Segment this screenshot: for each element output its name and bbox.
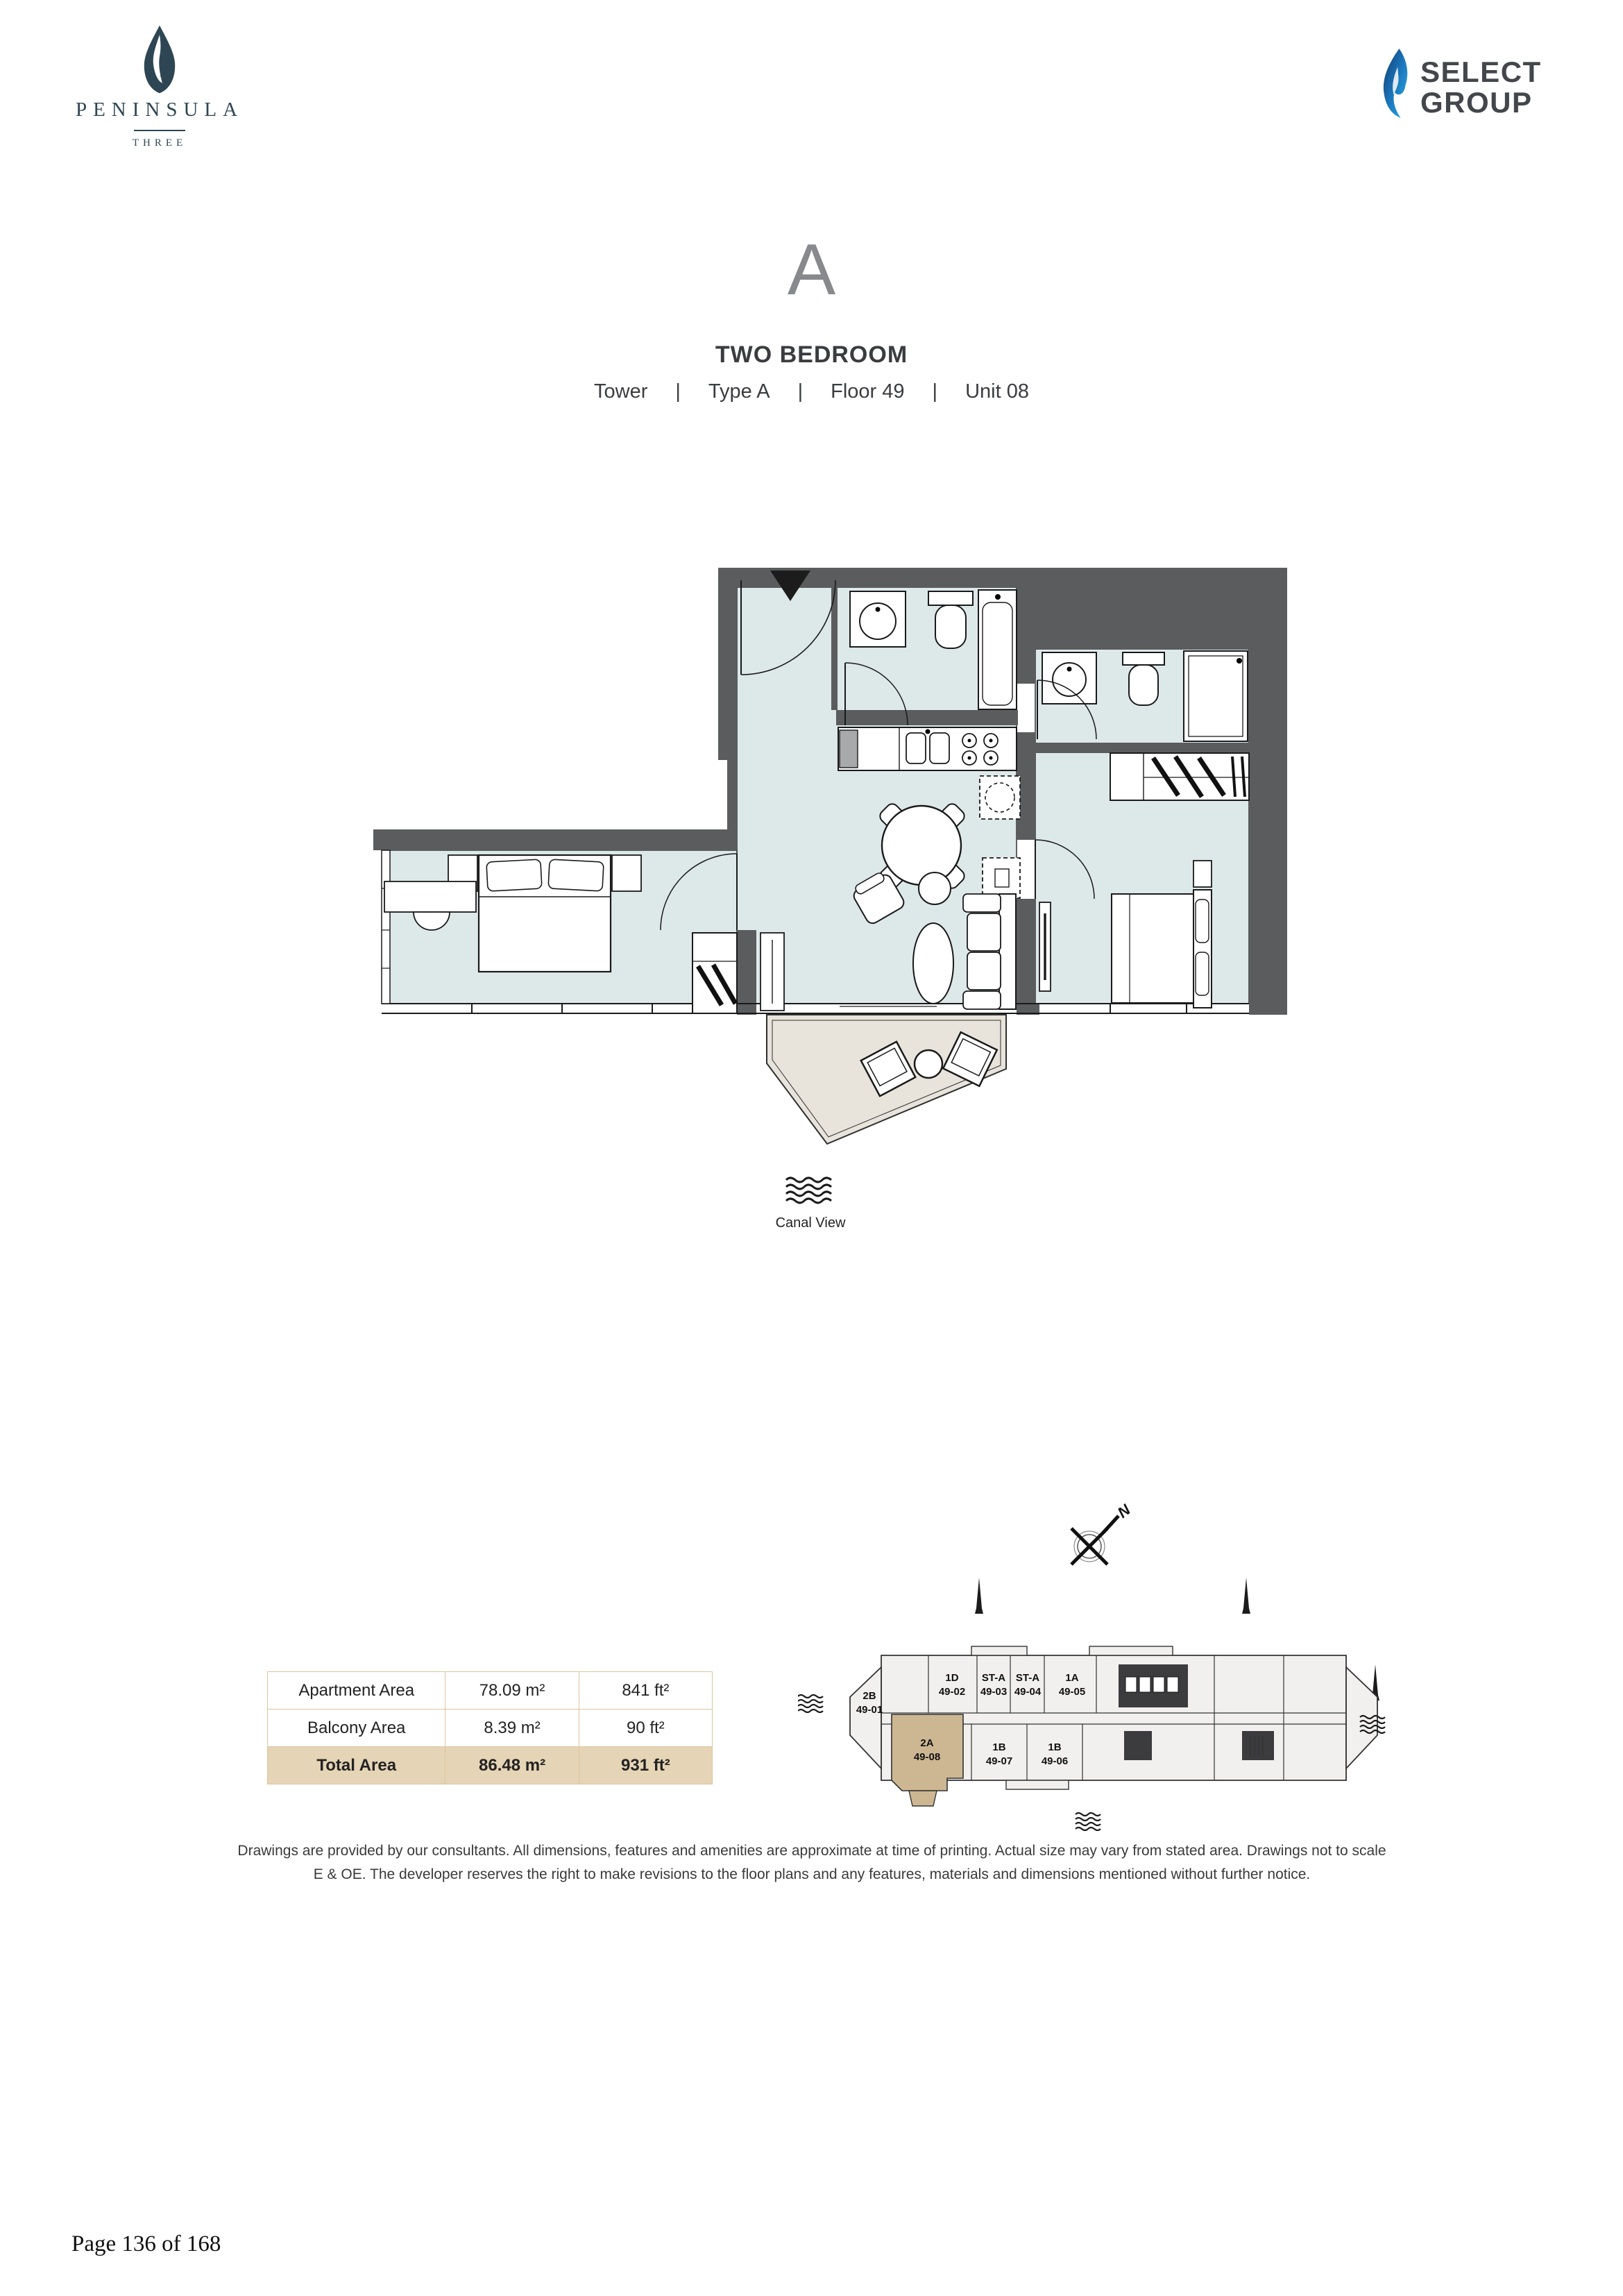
unit-label-number: 49-08 — [914, 1751, 940, 1763]
bed — [1112, 894, 1193, 1003]
desk — [384, 881, 476, 912]
select-group-logo: SELECT GROUP — [1377, 49, 1542, 118]
meta-unit: Unit 08 — [965, 380, 1029, 403]
table-row: Balcony Area 8.39 m² 90 ft² — [268, 1710, 713, 1747]
area-table: Apartment Area 78.09 m² 841 ft² Balcony … — [267, 1671, 713, 1784]
table-row-total: Total Area 86.48 m² 931 ft² — [268, 1747, 713, 1784]
unit-label-code: 1D — [945, 1672, 958, 1684]
unit-title: TWO BEDROOM — [0, 341, 1623, 369]
unit-label-number: 49-06 — [1042, 1755, 1068, 1767]
area-label: Total Area — [268, 1747, 445, 1784]
unit-label-number: 49-04 — [1014, 1686, 1042, 1698]
unit-label-code: 2A — [920, 1737, 933, 1749]
area-metric: 86.48 m² — [445, 1747, 579, 1784]
nightstand — [1193, 861, 1212, 887]
appliance — [983, 858, 1020, 898]
area-label: Apartment Area — [268, 1672, 445, 1710]
key-plan: N — [798, 1492, 1388, 1839]
unit-label-number: 49-03 — [980, 1686, 1007, 1698]
canal-view: Canal View — [741, 1176, 880, 1231]
meta-tower: Tower — [594, 380, 647, 403]
floor-plan — [312, 514, 1318, 1215]
canal-view-label: Canal View — [741, 1215, 880, 1231]
area-metric: 8.39 m² — [445, 1710, 579, 1747]
flame-icon — [1377, 49, 1415, 118]
dining-table — [882, 806, 961, 885]
unit-label-code: 2B — [863, 1690, 876, 1702]
developer-line1: SELECT — [1420, 57, 1542, 87]
page-number: Page 136 of 168 — [71, 2231, 221, 2257]
kitchen-sink — [906, 733, 926, 763]
pillow — [1196, 900, 1209, 943]
wardrobe — [692, 933, 737, 1013]
meta-floor: Floor 49 — [831, 380, 904, 403]
developer-name: SELECT GROUP — [1420, 57, 1542, 118]
unit-label-code: 1B — [992, 1741, 1005, 1753]
waves-icon — [783, 1176, 838, 1209]
unit-label-number: 49-01 — [856, 1704, 883, 1716]
disclaimer-text: Drawings are provided by our consultants… — [236, 1839, 1388, 1886]
peninsula-logo: PENINSULA THREE — [69, 24, 250, 149]
balcony — [767, 1015, 1006, 1144]
building-outline — [850, 1646, 1377, 1806]
pillow — [1196, 952, 1209, 995]
brand-divider — [134, 130, 185, 131]
unit-label-code: 1B — [1048, 1741, 1061, 1753]
toilet — [928, 591, 973, 605]
unit-label-code: ST-A — [1016, 1672, 1039, 1684]
meta-separator: | — [933, 380, 938, 403]
balcony-table — [915, 1050, 942, 1078]
brochure-page: PENINSULA THREE SELECT GROUP A TWO BEDRO… — [0, 0, 1623, 2296]
area-imperial: 841 ft² — [579, 1672, 712, 1710]
area-imperial: 90 ft² — [579, 1710, 712, 1747]
developer-line2: GROUP — [1420, 87, 1542, 118]
coffee-table — [913, 923, 953, 1004]
unit-label-code: 1A — [1065, 1672, 1078, 1684]
unit-label-number: 49-05 — [1059, 1686, 1085, 1698]
pillow — [548, 859, 604, 891]
brand-name: PENINSULA — [69, 99, 250, 121]
table-row: Apartment Area 78.09 m² 841 ft² — [268, 1672, 713, 1710]
meta-separator: | — [675, 380, 681, 403]
area-imperial: 931 ft² — [579, 1747, 712, 1784]
unit-label-code: ST-A — [982, 1672, 1005, 1684]
side-table — [919, 872, 951, 904]
unit-meta: Tower|Type A|Floor 49|Unit 08 — [0, 380, 1623, 403]
area-label: Balcony Area — [268, 1710, 445, 1747]
nightstand — [612, 855, 641, 891]
north-compass-icon: N — [1071, 1501, 1134, 1564]
unit-label-number: 49-02 — [939, 1686, 965, 1698]
peninsula-drop-icon — [139, 24, 180, 94]
shower — [1184, 651, 1248, 741]
bathtub — [978, 590, 1017, 709]
meta-type: Type A — [708, 380, 770, 403]
kitchen-cabinet — [840, 730, 858, 768]
pillow — [486, 859, 542, 891]
unit-label-number: 49-07 — [986, 1755, 1012, 1767]
brand-subtitle: THREE — [69, 137, 250, 149]
unit-type-letter: A — [0, 229, 1623, 312]
toilet — [1123, 652, 1164, 665]
meta-separator: | — [798, 380, 804, 403]
area-metric: 78.09 m² — [445, 1672, 579, 1710]
